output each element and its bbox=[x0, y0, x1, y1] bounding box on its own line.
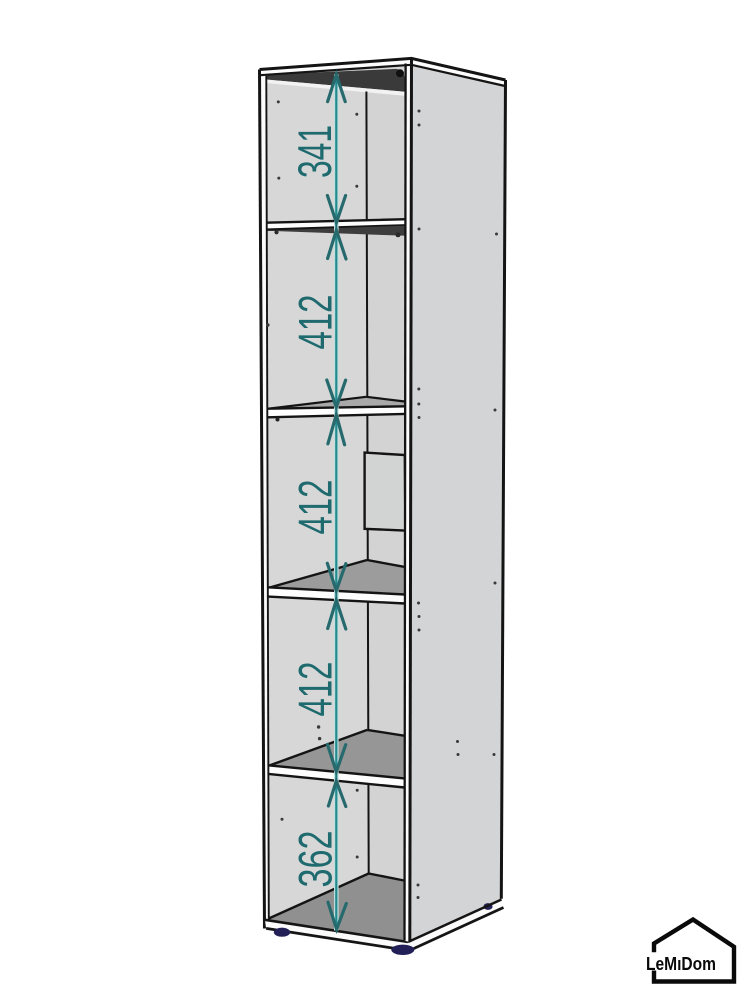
svg-text:412: 412 bbox=[290, 295, 343, 350]
svg-text:412: 412 bbox=[290, 662, 343, 717]
svg-text:362: 362 bbox=[290, 831, 343, 888]
svg-text:LeMıDom: LeMıDom bbox=[646, 953, 716, 974]
svg-text:412: 412 bbox=[290, 480, 343, 535]
svg-text:341: 341 bbox=[289, 125, 342, 178]
